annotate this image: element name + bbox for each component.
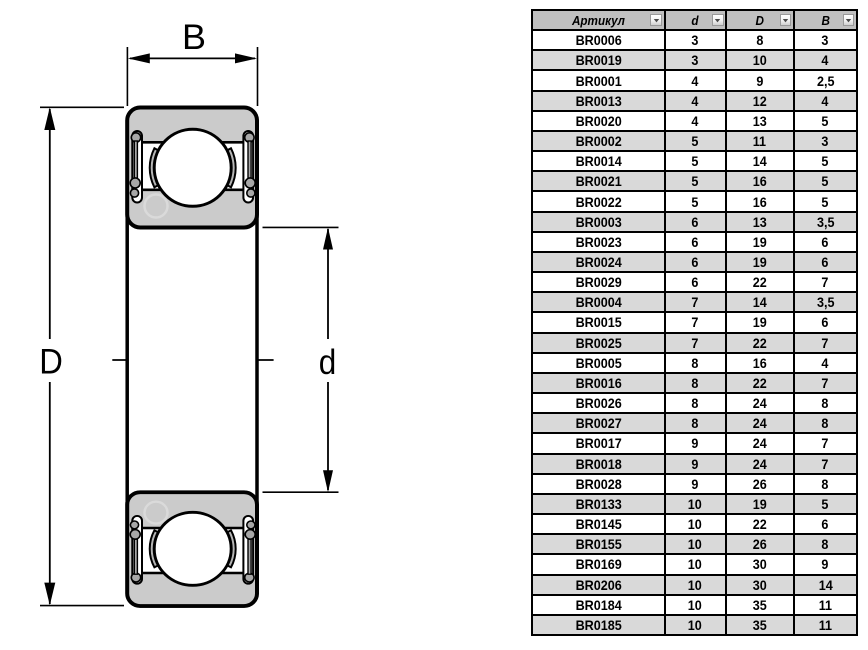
svg-text:d: d [319, 343, 337, 382]
svg-text:B: B [182, 18, 206, 57]
svg-text:D: D [39, 343, 63, 382]
